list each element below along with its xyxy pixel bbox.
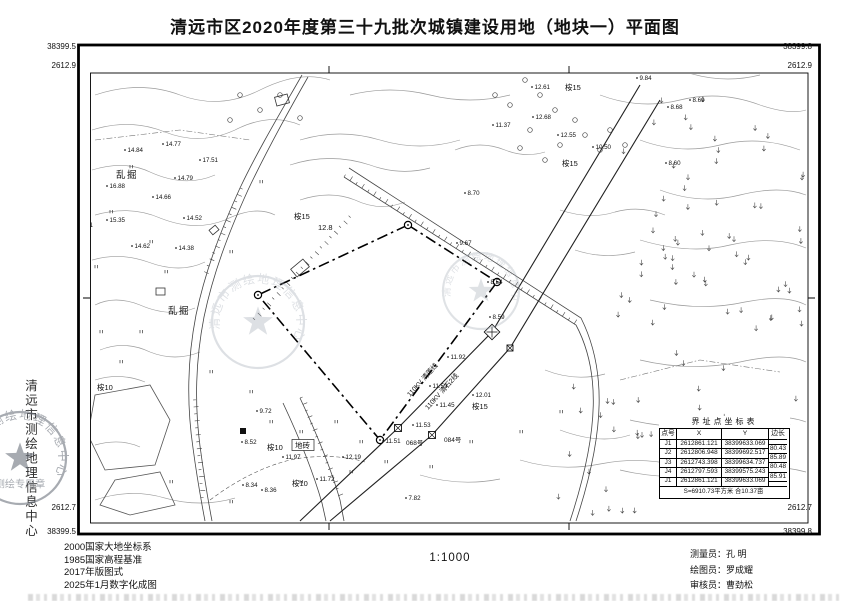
- svg-text:8.52: 8.52: [245, 439, 258, 446]
- spot-elevation: 8.54: [487, 279, 503, 286]
- table-cell: X: [676, 429, 721, 439]
- credit-line: 测量员：孔 明: [690, 547, 753, 563]
- frame-coord-top-right-easting: 38399.8: [766, 42, 812, 51]
- spot-elevation: 8.52: [241, 439, 257, 446]
- svg-text:清远市测绘地理信息中心: 清远市测绘地理信息中心: [208, 271, 309, 344]
- spot-elevation: 11.53: [412, 422, 431, 429]
- svg-text:8.54: 8.54: [491, 279, 504, 286]
- svg-text:10.50: 10.50: [596, 144, 612, 151]
- svg-text:16.88: 16.88: [110, 183, 126, 190]
- spot-elevation: 11.45: [436, 402, 455, 409]
- credit-line: 审核员：曹劲松: [690, 578, 753, 594]
- table-cell: 2612797.593: [676, 467, 721, 476]
- feature-label: 地砖: [292, 440, 314, 451]
- spot-elevation: 11.72: [316, 476, 335, 483]
- spot-elevation: 14.62: [131, 243, 150, 250]
- svg-text:桉10: 桉10: [267, 442, 283, 452]
- svg-text:8.69: 8.69: [693, 97, 706, 104]
- feature-label: 桉15: [472, 401, 488, 411]
- spot-elevation: 7.82: [405, 495, 421, 502]
- svg-text:8.34: 8.34: [246, 482, 259, 489]
- frame-coord-top-left-easting: 38399.5: [30, 42, 76, 51]
- feature-label: 桉15: [294, 211, 310, 221]
- spot-elevation: 8.34: [242, 482, 258, 489]
- table-cell: 85.89: [768, 453, 787, 462]
- spot-elevation: 15.35: [106, 217, 125, 224]
- spot-elevation: 8.59: [489, 314, 505, 321]
- frame-coord-top-right-northing: 2612.9: [766, 61, 812, 70]
- spot-elevation: 8.68: [667, 104, 683, 111]
- feature-label: 乱掘: [116, 169, 138, 181]
- credits-block: 测量员：孔 明绘图员：罗成耀审核员：曹劲松: [690, 547, 753, 594]
- table-cell: 80.48: [768, 462, 787, 471]
- svg-text:7.82: 7.82: [409, 495, 422, 502]
- table-cell: J1: [660, 439, 676, 448]
- svg-text:14.62: 14.62: [135, 243, 151, 250]
- power-line-label: 110KV 清莲线: [405, 361, 440, 399]
- scale-text: 1:1000: [375, 552, 525, 564]
- pole-number-label: 068号: [406, 439, 424, 447]
- svg-text:桉10: 桉10: [97, 382, 113, 392]
- table-cell: 2612806.948: [676, 448, 721, 457]
- spot-elevation: 11.37: [492, 122, 511, 129]
- spot-elevation: 16.88: [106, 183, 125, 190]
- svg-text:清远市测绘地理信息中心: 清远市测绘地理信息中心: [0, 407, 71, 480]
- spot-elevation: 8.70: [464, 190, 480, 197]
- svg-text:14.38: 14.38: [179, 245, 195, 252]
- svg-text:15.35: 15.35: [110, 217, 126, 224]
- table-cell: J3: [660, 458, 676, 467]
- cutoff-print-artifact: [28, 594, 844, 601]
- table-cell: 2612743.398: [676, 458, 721, 467]
- spot-elevation: 10.50: [592, 144, 611, 151]
- table-cell: 2612861.121: [676, 477, 721, 486]
- table-cell: J2: [660, 448, 676, 457]
- spot-elevation: 15.11: [65, 160, 84, 167]
- svg-text:14.79: 14.79: [178, 175, 194, 182]
- svg-text:桉15: 桉15: [565, 82, 581, 92]
- table-cell: J4: [660, 467, 676, 476]
- svg-text:9.72: 9.72: [260, 408, 273, 415]
- svg-text:11.92: 11.92: [451, 354, 467, 361]
- official-seal: 清远市测绘地理信息中心: [208, 271, 309, 368]
- table-cell: 点号: [660, 429, 676, 439]
- svg-text:14.52: 14.52: [187, 215, 203, 222]
- svg-text:12.61: 12.61: [535, 84, 551, 91]
- power-pole-icon: [429, 432, 436, 439]
- svg-text:11.97: 11.97: [286, 454, 302, 461]
- svg-text:14.84: 14.84: [128, 147, 144, 154]
- spot-elevation: 17.51: [199, 157, 218, 164]
- spot-elevation: 12.61: [531, 84, 550, 91]
- svg-text:乱掘: 乱掘: [116, 169, 138, 181]
- datum-note-line: 2025年1月数字化成图: [64, 580, 157, 593]
- power-pole-icon: [507, 345, 513, 351]
- svg-text:12.55: 12.55: [561, 132, 577, 139]
- table-cell: S=6910.73平方米 合10.37亩: [660, 486, 787, 498]
- frame-coord-bottom-left-northing: 2612.7: [30, 503, 76, 512]
- boundary-coords-table-grid: 点号XY边长J12612861.12138399633.069J22612806…: [659, 428, 790, 499]
- datum-note-line: 1985国家高程基准: [64, 555, 157, 568]
- boundary-coords-table: 界址点坐标表 点号XY边长J12612861.12138399633.069J2…: [659, 416, 790, 499]
- table-cell: 边长: [768, 429, 787, 439]
- svg-text:15.11: 15.11: [69, 160, 85, 167]
- svg-text:12.68: 12.68: [536, 114, 552, 121]
- credit-line: 绘图员：罗成耀: [690, 563, 753, 579]
- feature-label: 桉10: [97, 382, 113, 392]
- svg-text:11.72: 11.72: [320, 476, 336, 483]
- svg-text:8.60: 8.60: [669, 160, 682, 167]
- spot-elevation: 12.19: [342, 454, 361, 461]
- spot-elevation: 12.55: [557, 132, 576, 139]
- table-cell: 38399634.737: [721, 458, 768, 467]
- table-cell: 38399633.069: [721, 477, 768, 486]
- spot-elevation: 14.84: [124, 147, 143, 154]
- svg-text:8.70: 8.70: [468, 190, 481, 197]
- spot-elevation: 14.77: [162, 141, 181, 148]
- spot-elevation: 14.52: [183, 215, 202, 222]
- plot-boundary: [254, 221, 500, 443]
- table-cell: J1: [660, 477, 676, 486]
- feature-label: 桉15: [565, 82, 581, 92]
- svg-text:9.67: 9.67: [460, 240, 473, 247]
- spot-elevation: 14.79: [174, 175, 193, 182]
- table-cell: 85.91: [768, 472, 787, 481]
- svg-text:桉15: 桉15: [472, 401, 488, 411]
- frame-coord-top-left-northing: 2612.9: [30, 61, 76, 70]
- table-cell: 2612861.121: [676, 439, 721, 448]
- official-seal: 清远市测绘地理信息中心测绘专用章: [0, 407, 71, 504]
- frame-coord-bottom-right-northing: 2612.7: [766, 503, 812, 512]
- svg-text:12.8: 12.8: [318, 223, 333, 232]
- roads: [189, 75, 599, 521]
- spot-elevation: 8.36: [261, 487, 277, 494]
- spot-elevation: 8.69: [689, 97, 705, 104]
- svg-text:乱掘: 乱掘: [168, 305, 190, 317]
- spot-elevation: 9.84: [636, 75, 652, 82]
- spot-elevation: 12.68: [532, 114, 551, 121]
- feature-label: 桉10: [267, 442, 283, 452]
- spot-elevation: 9.67: [456, 240, 472, 247]
- feature-label: 12.8: [318, 223, 333, 232]
- spot-elevation: 9.72: [256, 408, 272, 415]
- spot-elevation: 11.51: [382, 438, 401, 445]
- svg-text:11.37: 11.37: [496, 122, 512, 129]
- boundary-point-marker: [376, 436, 383, 443]
- spot-elevation: 12.01: [472, 392, 491, 399]
- datum-note-line: 2017年版图式: [64, 567, 157, 580]
- svg-text:桉10: 桉10: [292, 478, 308, 488]
- svg-text:15.21: 15.21: [78, 222, 94, 229]
- svg-text:11.45: 11.45: [440, 402, 456, 409]
- datum-note-line: 2000国家大地坐标系: [64, 542, 157, 555]
- feature-label: 乱掘: [168, 305, 190, 317]
- svg-text:8.68: 8.68: [671, 104, 684, 111]
- table-cell: Y: [721, 429, 768, 439]
- table-cell: 38399575.243: [721, 467, 768, 476]
- slope-hatches: [193, 175, 577, 498]
- svg-text:8.36: 8.36: [265, 487, 278, 494]
- boundary-coords-table-title: 界址点坐标表: [659, 416, 790, 427]
- svg-text:地砖: 地砖: [295, 440, 310, 450]
- map-sheet: 清远市区2020年度第三十九批次城镇建设用地（地块一）平面图 清远市测绘地理信息…: [0, 0, 850, 601]
- pond-outlines: [88, 385, 175, 515]
- boundary-point-marker: [254, 291, 261, 298]
- datum-notes: 2000国家大地坐标系1985国家高程基准2017年版图式2025年1月数字化成…: [64, 542, 157, 592]
- svg-text:12.01: 12.01: [476, 392, 492, 399]
- svg-text:11.51: 11.51: [386, 438, 402, 445]
- table-cell: 80.43: [768, 444, 787, 453]
- spot-elevation: 8.60: [665, 160, 681, 167]
- svg-text:14.66: 14.66: [156, 194, 172, 201]
- spot-elevation: 11.97: [282, 454, 301, 461]
- svg-text:桉15: 桉15: [562, 158, 578, 168]
- feature-label: 桉10: [292, 478, 308, 488]
- frame-coord-bottom-left-easting: 38399.5: [30, 527, 76, 536]
- power-pole-icon: [395, 425, 402, 432]
- svg-text:17.51: 17.51: [203, 157, 219, 164]
- pole-number-label: 084号: [444, 436, 462, 444]
- frame-coord-bottom-right-easting: 38399.8: [766, 527, 812, 536]
- svg-text:12.19: 12.19: [346, 454, 362, 461]
- land-boundaries: [95, 130, 780, 380]
- table-cell: 38399692.517: [721, 448, 768, 457]
- boundary-point-marker: [404, 221, 411, 228]
- feature-label: 桉15: [562, 158, 578, 168]
- svg-text:9.84: 9.84: [640, 75, 653, 82]
- svg-text:8.59: 8.59: [493, 314, 506, 321]
- svg-text:14.77: 14.77: [166, 141, 182, 148]
- spot-elevation: 11.92: [447, 354, 466, 361]
- spot-elevation: 14.38: [175, 245, 194, 252]
- svg-text:测绘专用章: 测绘专用章: [0, 477, 45, 490]
- svg-text:桉15: 桉15: [294, 211, 310, 221]
- spot-elevation: 14.66: [152, 194, 171, 201]
- map-canvas: 15.1114.8414.7717.5114.7916.8814.6614.52…: [0, 0, 850, 601]
- svg-text:11.53: 11.53: [416, 422, 432, 429]
- table-cell: 38399633.069: [721, 439, 768, 448]
